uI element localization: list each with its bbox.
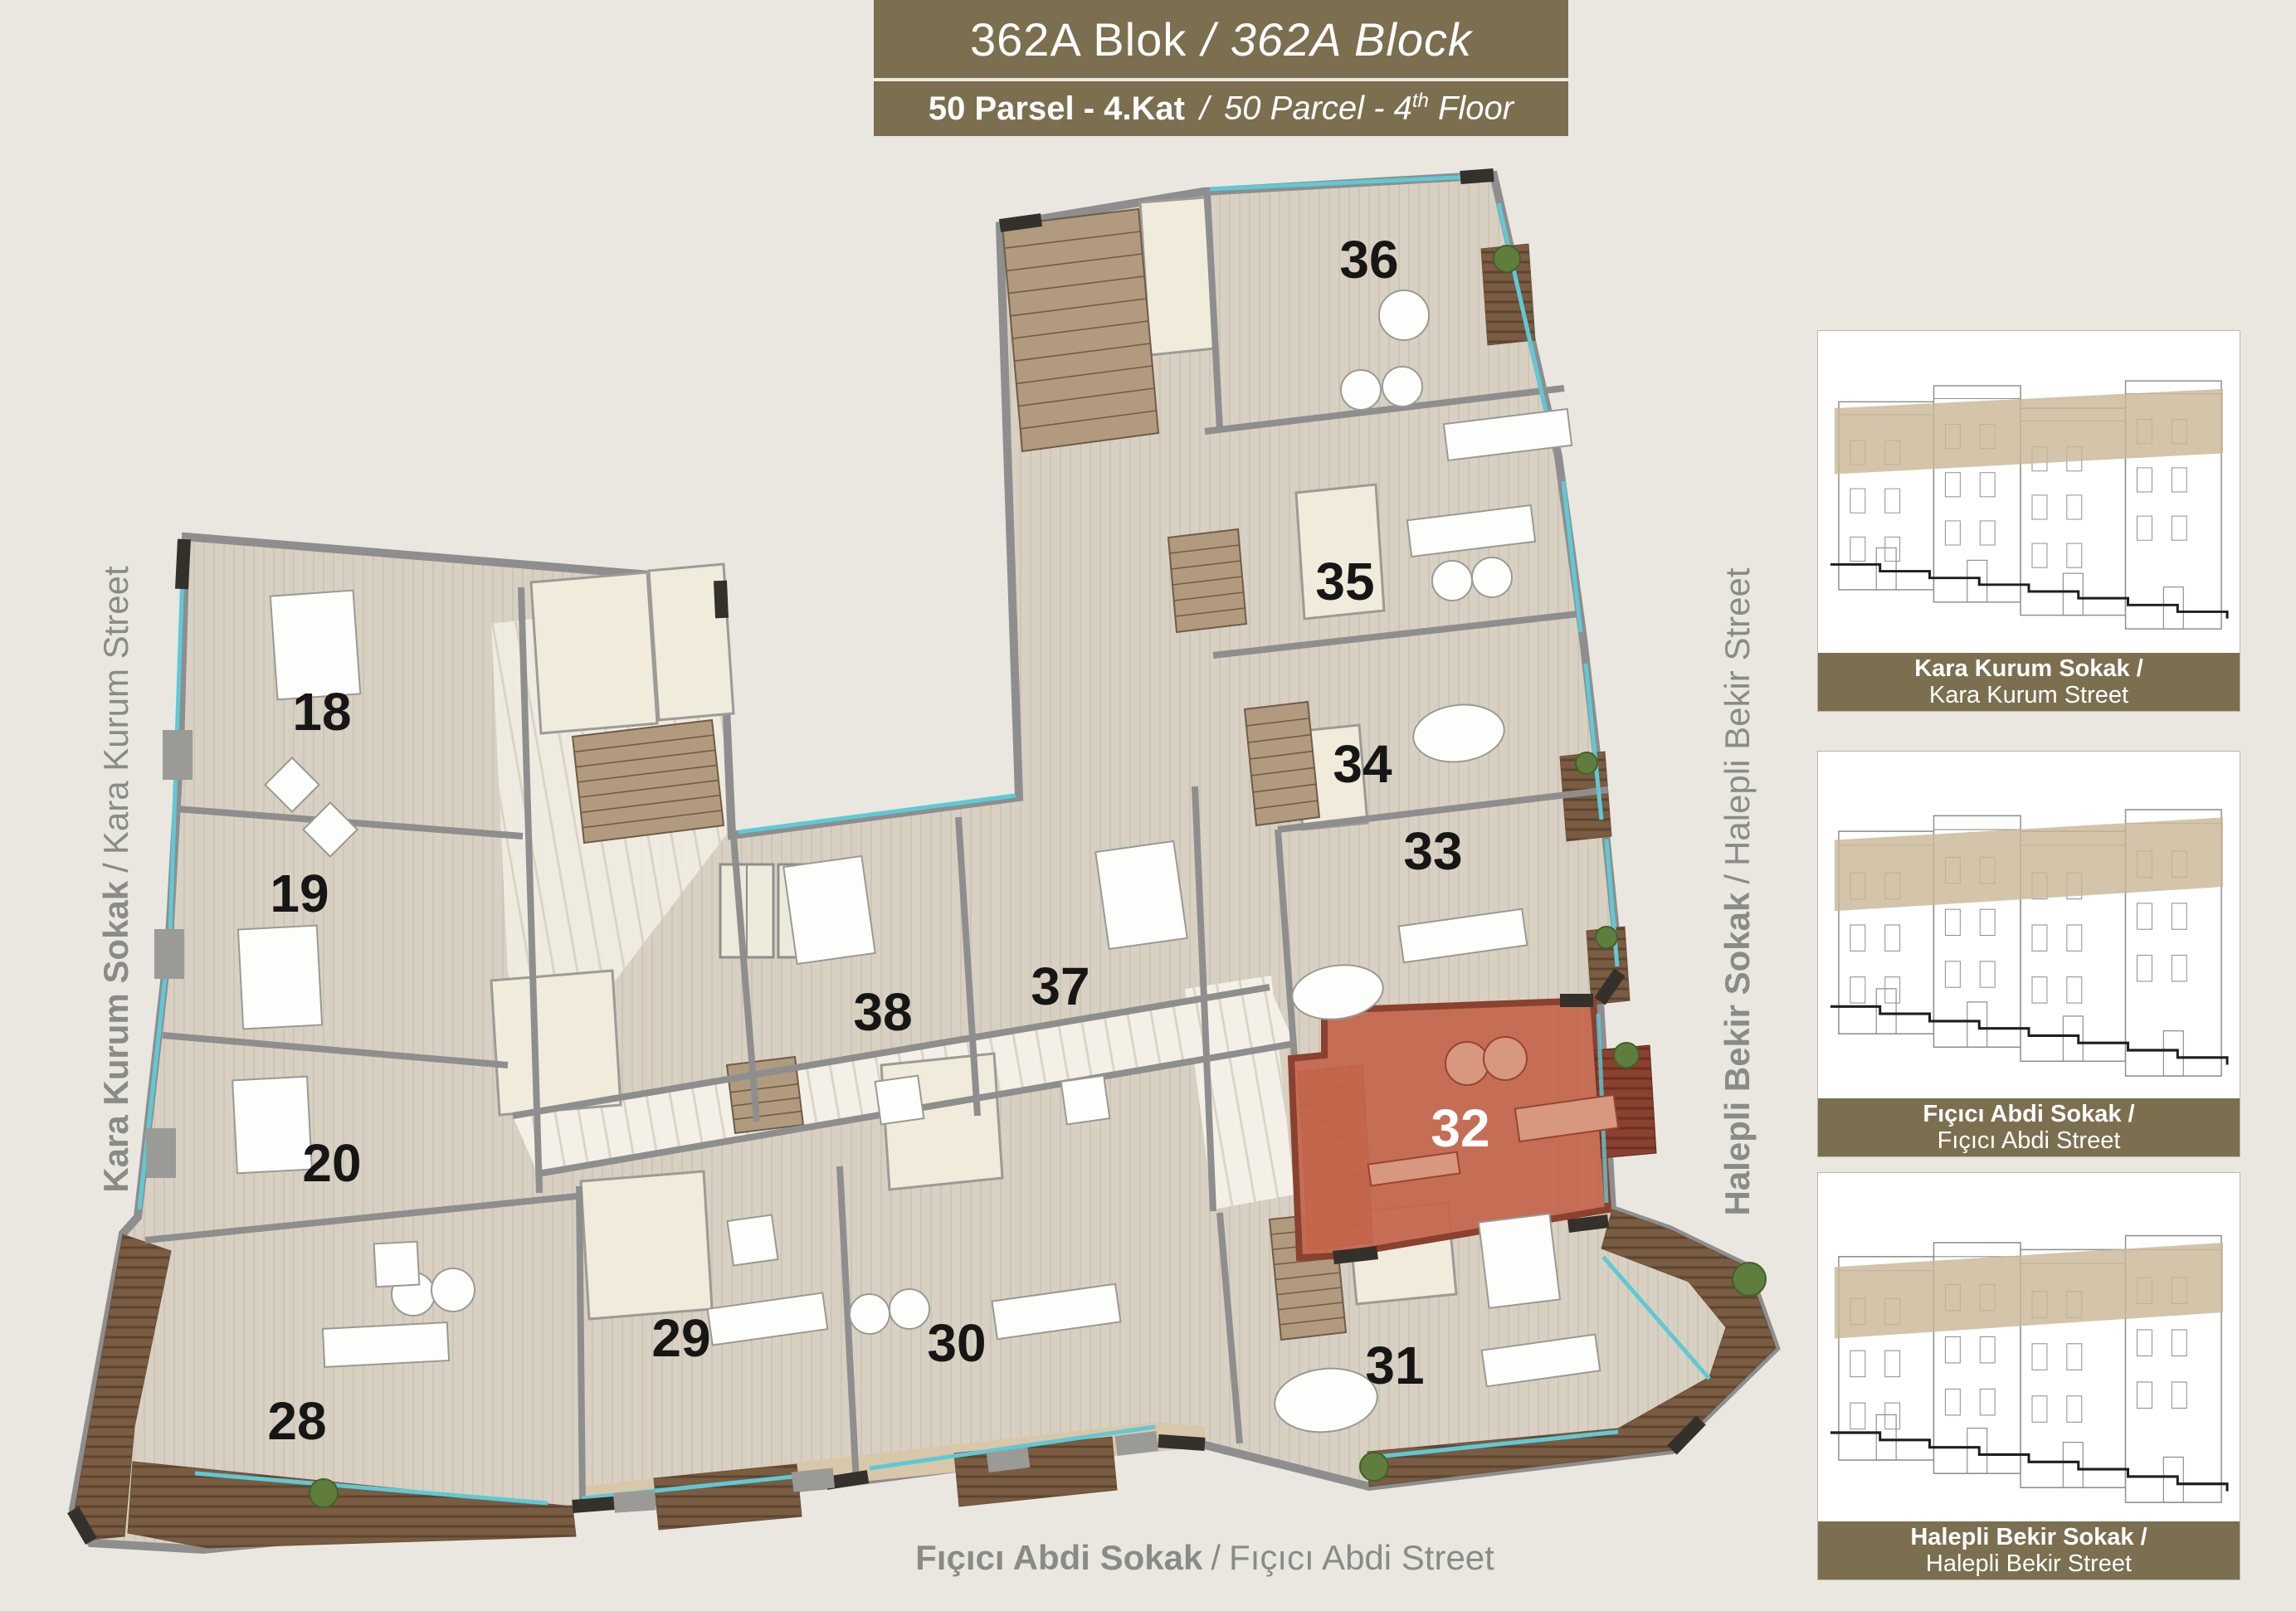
unit-label-32: 32	[1431, 1098, 1489, 1158]
elevation-drawing	[1818, 752, 2240, 1098]
unit-label-38: 38	[853, 982, 912, 1042]
unit-label-28: 28	[267, 1391, 326, 1451]
street-label-kara-kurum: Kara Kurum Sokak/Kara Kurum Street	[96, 566, 136, 1192]
floor-subtitle-en: 50 Parcel - 4th Floor	[1224, 90, 1514, 127]
unit-label-18: 18	[292, 682, 351, 742]
elevation-caption: Fıçıcı Abdi Sokak / Fıçıcı Abdi Street	[1818, 1098, 2240, 1156]
elevation-card-ficici-abdi: Fıçıcı Abdi Sokak / Fıçıcı Abdi Street	[1817, 751, 2240, 1157]
block-title: 362A Blok / 362A Block	[874, 0, 1568, 81]
stair-core	[1245, 702, 1319, 825]
unit-label-33: 33	[1403, 821, 1462, 881]
unit-label-30: 30	[927, 1313, 986, 1373]
stair-core	[573, 720, 724, 843]
street-label-halepli-bekir: Halepli Bekir Sokak/Halepli Bekir Street	[1718, 567, 1757, 1215]
unit-label-36: 36	[1339, 230, 1398, 290]
floor-subtitle: 50 Parsel - 4.Kat / 50 Parcel - 4th Floo…	[874, 81, 1568, 136]
block-title-tr: 362A Blok	[970, 12, 1187, 66]
floor-subtitle-tr: 50 Parsel - 4.Kat	[929, 90, 1185, 128]
unit-label-34: 34	[1333, 734, 1392, 794]
title-banner: 362A Blok / 362A Block 50 Parsel - 4.Kat…	[874, 0, 1568, 136]
elevation-drawing	[1818, 1173, 2240, 1521]
unit-label-37: 37	[1031, 956, 1090, 1016]
elevation-caption: Kara Kurum Sokak / Kara Kurum Street	[1818, 653, 2240, 711]
elevation-drawing	[1818, 331, 2240, 653]
unit-label-29: 29	[651, 1308, 710, 1368]
street-label-ficici-abdi: Fıçıcı Abdi Sokak/Fıçıcı Abdi Street	[915, 1538, 1494, 1578]
elevation-caption: Halepli Bekir Sokak / Halepli Bekir Stre…	[1818, 1521, 2240, 1579]
unit-label-19: 19	[270, 864, 329, 923]
block-title-en: 362A Block	[1231, 12, 1472, 66]
unit-label-31: 31	[1365, 1336, 1424, 1395]
page: 1819202829303132333435363738 362A Blok /…	[0, 0, 2296, 1611]
elevation-card-halepli-bekir: Halepli Bekir Sokak / Halepli Bekir Stre…	[1817, 1172, 2240, 1580]
elevation-card-kara-kurum: Kara Kurum Sokak / Kara Kurum Street	[1817, 330, 2240, 712]
unit-label-20: 20	[302, 1133, 361, 1193]
unit-label-35: 35	[1315, 552, 1374, 611]
